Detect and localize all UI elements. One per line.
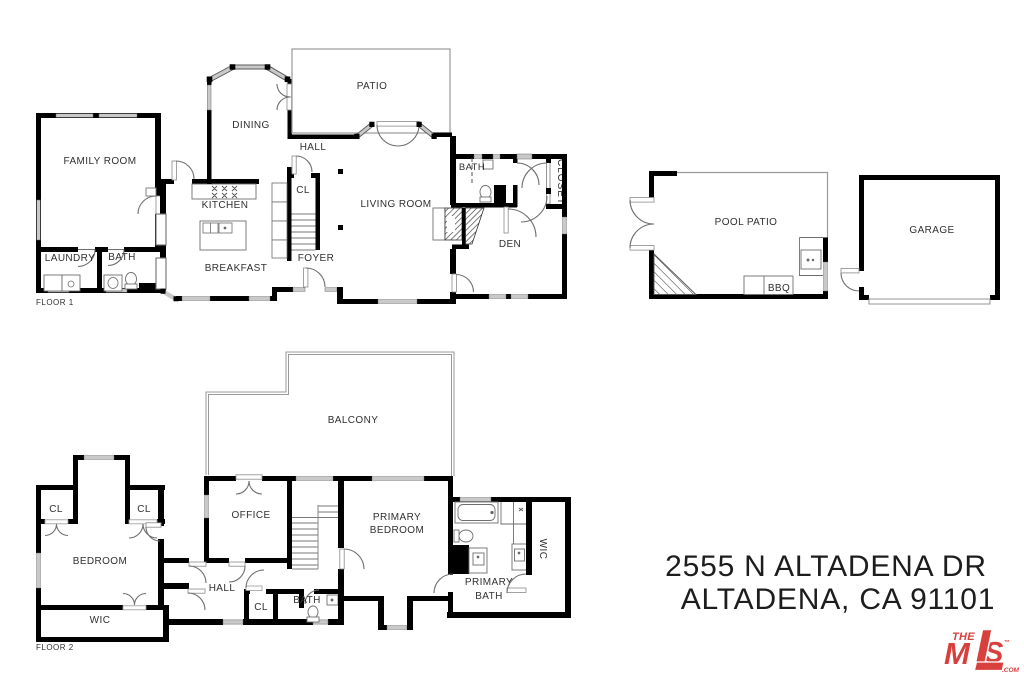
svg-text:BATH: BATH bbox=[293, 595, 321, 606]
svg-text:BATH: BATH bbox=[475, 591, 503, 602]
svg-text:BEDROOM: BEDROOM bbox=[73, 556, 127, 567]
svg-text:LIVING ROOM: LIVING ROOM bbox=[360, 199, 431, 210]
svg-text:WIC: WIC bbox=[90, 615, 111, 626]
svg-text:FLOOR 1: FLOOR 1 bbox=[36, 298, 74, 307]
svg-text:.COM: .COM bbox=[1002, 667, 1020, 674]
svg-text:FAMILY ROOM: FAMILY ROOM bbox=[64, 156, 137, 167]
svg-text:HALL: HALL bbox=[300, 142, 327, 153]
svg-text:POOL PATIO: POOL PATIO bbox=[715, 217, 778, 228]
svg-text:BREAKFAST: BREAKFAST bbox=[205, 263, 268, 274]
svg-text:BEDROOM: BEDROOM bbox=[370, 525, 424, 536]
svg-text:PRIMARY: PRIMARY bbox=[373, 512, 421, 523]
svg-text:PRIMARY: PRIMARY bbox=[465, 577, 513, 588]
svg-text:CL: CL bbox=[49, 504, 63, 515]
svg-text:™: ™ bbox=[1004, 639, 1010, 646]
svg-text:BBQ: BBQ bbox=[768, 283, 790, 294]
svg-text:M: M bbox=[944, 636, 971, 671]
svg-text:ALTADENA, CA 91101: ALTADENA, CA 91101 bbox=[681, 583, 996, 616]
svg-text:HALL: HALL bbox=[209, 583, 236, 594]
svg-text:DEN: DEN bbox=[499, 239, 521, 250]
svg-text:LAUNDRY: LAUNDRY bbox=[45, 253, 95, 264]
svg-text:FLOOR 2: FLOOR 2 bbox=[36, 643, 74, 652]
svg-text:CL: CL bbox=[254, 602, 268, 613]
svg-text:BALCONY: BALCONY bbox=[328, 415, 379, 426]
svg-text:KITCHEN: KITCHEN bbox=[202, 200, 249, 211]
svg-text:DINING: DINING bbox=[232, 120, 269, 131]
svg-text:OFFICE: OFFICE bbox=[231, 510, 270, 521]
svg-text:GARAGE: GARAGE bbox=[909, 225, 954, 236]
svg-text:CL: CL bbox=[296, 185, 310, 196]
svg-text:FOYER: FOYER bbox=[298, 253, 334, 264]
svg-text:2555 N ALTADENA DR: 2555 N ALTADENA DR bbox=[665, 550, 987, 583]
svg-text:CL: CL bbox=[137, 504, 151, 515]
svg-text:PATIO: PATIO bbox=[357, 81, 388, 92]
svg-text:WIC: WIC bbox=[537, 539, 548, 560]
svg-text:BATH: BATH bbox=[459, 162, 485, 173]
svg-text:BATH: BATH bbox=[108, 252, 136, 263]
